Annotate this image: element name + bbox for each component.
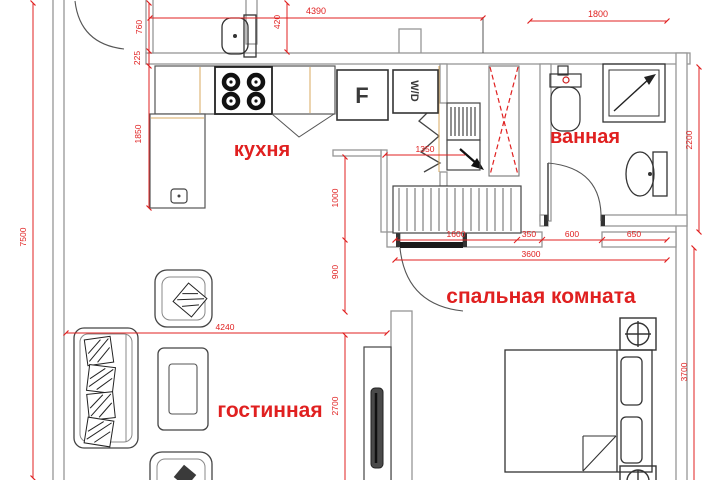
door-arc-bathroom [548,163,601,221]
dim-4390: 4390 [306,6,326,16]
dim-1000: 1000 [330,188,340,207]
door-leaf-bedroom [400,242,463,248]
wall-kitchen-hall-upper [440,64,447,103]
dim-760: 760 [134,20,144,34]
dim-1800: 1800 [588,9,608,19]
kitchen-counter-left [150,114,205,208]
armchair-bottom [150,452,212,480]
fridge-label: F [355,83,368,108]
sofa-pillow [84,417,114,447]
dim-7500: 7500 [18,227,28,246]
dim-225: 225 [132,51,142,65]
door-arc-topleft [75,1,124,49]
floor-plan: F W/D [0,0,720,480]
shower-cabin [603,64,665,122]
wall-kitchen-hall-lower [440,172,447,186]
toilet-drain [233,34,237,38]
room-label-bathroom: ванная [550,126,620,148]
pillow [621,417,642,463]
bathroom-toilet [550,66,581,131]
room-label-kitchen: кухня [234,139,290,161]
bathroom-sink [626,152,667,196]
dim-1850: 1850 [133,124,143,143]
hall-radiator [447,103,480,170]
dim-600: 600 [565,229,579,239]
dim-2200: 2200 [684,130,694,149]
dim-1350: 1350 [416,144,435,154]
sofa-pillow [87,365,116,394]
hall-wardrobe [393,186,521,233]
tv-unit [364,347,391,480]
wall-bedroom-left [391,311,412,480]
armchair-top [155,270,212,327]
wall-right-outer [676,53,687,480]
flush-button [563,77,569,83]
floor-plan-drawing: F W/D [0,0,720,480]
room-label-bedroom: спальная комната [446,285,636,308]
washer-dryer-label: W/D [408,80,420,101]
wall-top-band [146,53,690,64]
coffee-table [158,348,208,430]
corner-cabinet-marks [272,114,334,137]
dim-3700: 3700 [679,362,689,381]
vent-shaft [489,66,519,176]
sofa [74,328,138,448]
fridge: F [337,70,388,120]
wall-hall-left [381,150,387,232]
nightstand-lamp-top [620,318,656,350]
room-label-living: гостинная [217,399,322,422]
stove [215,67,272,114]
dim-4240: 4240 [216,322,235,332]
pillow [621,357,642,405]
bed [505,350,652,472]
dim-2700: 2700 [330,396,340,415]
dim-650: 650 [627,229,641,239]
dim-1600: 1600 [447,229,466,239]
wall-top-bump [399,29,421,55]
wall-bath-bottom-right [601,215,687,226]
sofa-pillow [87,392,116,421]
wall-left-outer [53,0,64,480]
dim-420: 420 [272,15,282,29]
dim-350: 350 [522,229,536,239]
wall-hall-top-stub [333,150,381,156]
washer-dryer: W/D [393,70,438,113]
dim-3600: 3600 [522,249,541,259]
sofa-pillow [84,336,113,365]
dim-900: 900 [330,265,340,279]
